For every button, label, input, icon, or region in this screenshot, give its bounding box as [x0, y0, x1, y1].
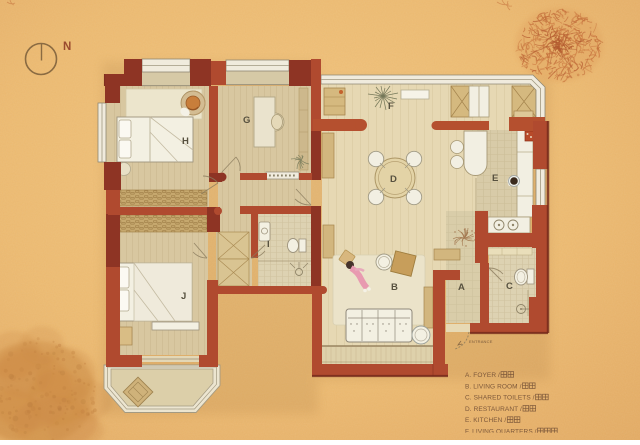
svg-text:H: H	[182, 136, 189, 147]
svg-text:B. LIVING ROOM /: B. LIVING ROOM /	[465, 383, 522, 390]
svg-text:I: I	[267, 239, 270, 250]
svg-text:A: A	[458, 282, 465, 293]
svg-text:C. SHARED TOILETS /: C. SHARED TOILETS /	[465, 395, 535, 402]
svg-text:A. FOYER /: A. FOYER /	[465, 372, 500, 379]
svg-text:J: J	[181, 291, 186, 302]
svg-text:B: B	[391, 282, 398, 293]
svg-text:E: E	[492, 173, 498, 184]
svg-text:N: N	[63, 41, 71, 53]
svg-text:E. KITCHEN /: E. KITCHEN /	[465, 417, 506, 424]
svg-text:F: F	[388, 101, 394, 112]
svg-text:ENTRANCE: ENTRANCE	[469, 339, 493, 344]
svg-text:C: C	[506, 281, 513, 292]
svg-text:D. RESTAURANT /: D. RESTAURANT /	[465, 406, 522, 413]
svg-text:D: D	[390, 174, 397, 185]
svg-text:G: G	[243, 115, 250, 126]
